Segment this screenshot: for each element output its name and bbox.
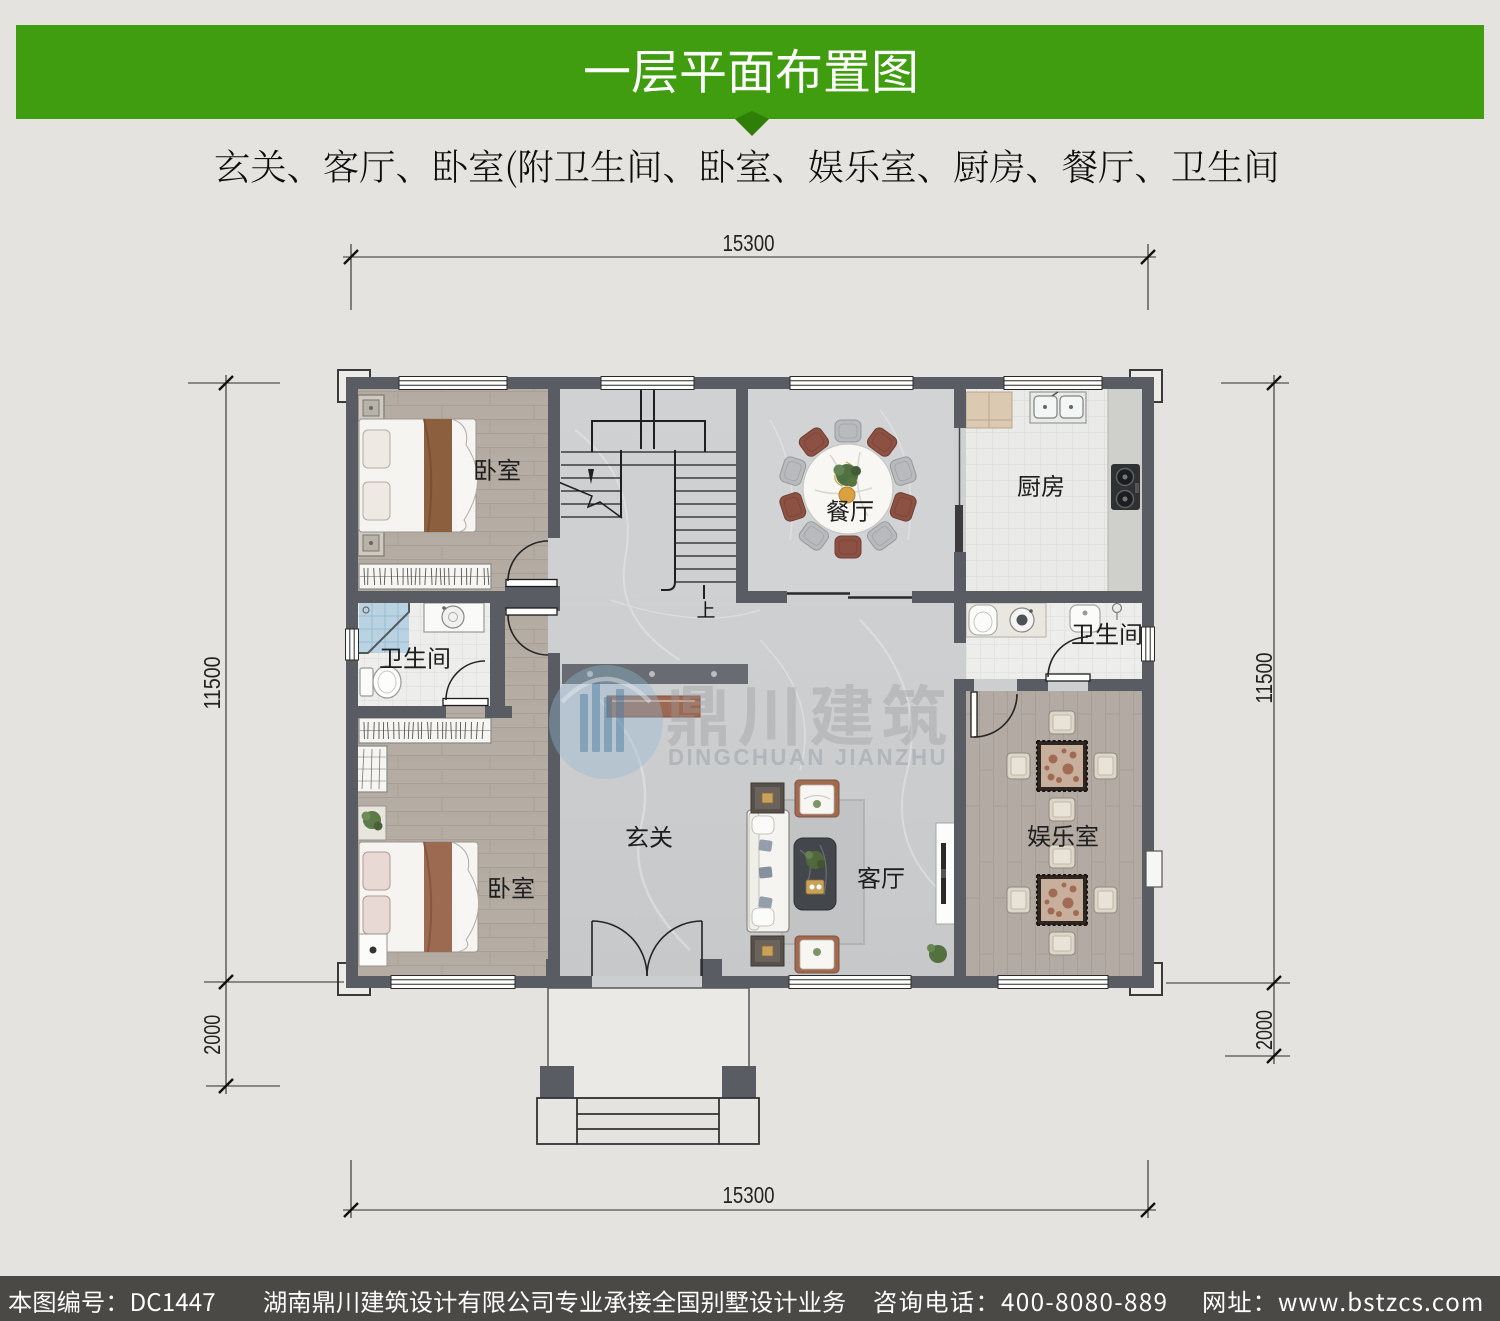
- svg-text:15300: 15300: [723, 1182, 775, 1208]
- svg-text:2000: 2000: [1251, 1010, 1277, 1050]
- svg-text:15300: 15300: [723, 230, 775, 256]
- svg-text:11500: 11500: [199, 657, 225, 710]
- svg-text:2000: 2000: [199, 1015, 225, 1055]
- svg-text:11500: 11500: [1251, 653, 1277, 704]
- svg-text:DINGCHUAN JIANZHU: DINGCHUAN JIANZHU: [668, 744, 948, 770]
